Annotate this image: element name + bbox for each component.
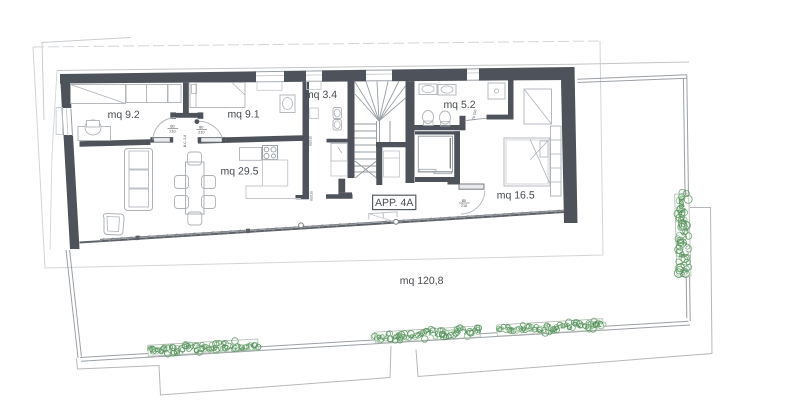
svg-text:mq 9.1: mq 9.1: [227, 108, 259, 120]
svg-text:210: 210: [169, 129, 175, 133]
svg-text:80: 80: [462, 199, 466, 203]
svg-text:B.C. 2,8: B.C. 2,8: [183, 135, 187, 147]
svg-text:mq 9.2: mq 9.2: [108, 109, 140, 121]
svg-text:mq 120,8: mq 120,8: [400, 275, 444, 287]
svg-text:80/210: 80/210: [310, 191, 314, 201]
svg-text:80: 80: [199, 125, 203, 129]
svg-text:APP. 4A: APP. 4A: [375, 197, 413, 209]
svg-text:80/210: 80/210: [309, 136, 313, 146]
svg-text:210: 210: [198, 130, 204, 134]
svg-text:mq 5.2: mq 5.2: [443, 99, 475, 111]
svg-text:mq 16.5: mq 16.5: [497, 189, 535, 201]
svg-text:mq 29.5: mq 29.5: [221, 166, 259, 178]
svg-text:mq 3.4: mq 3.4: [305, 89, 337, 101]
svg-text:210: 210: [461, 204, 467, 208]
svg-text:80: 80: [170, 124, 174, 128]
